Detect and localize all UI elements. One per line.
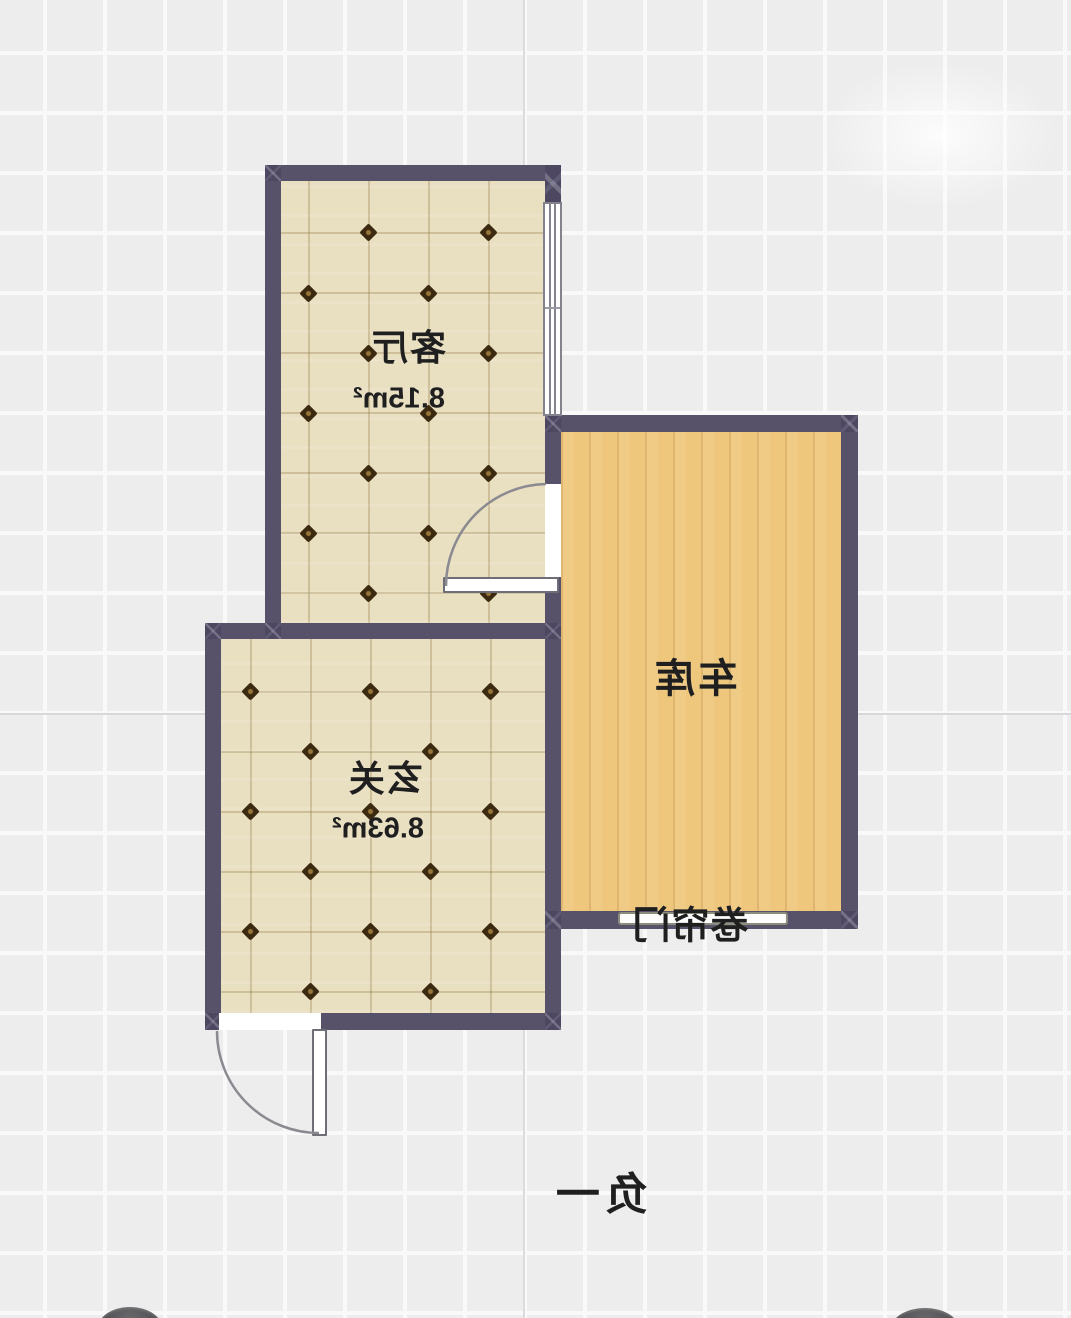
floor-diamond-motif: [481, 682, 499, 700]
door-leaf-entry[interactable]: [312, 1029, 327, 1136]
wall-corner: [265, 623, 281, 639]
wall-corner: [265, 165, 281, 181]
floor-diamond-motif: [419, 524, 437, 542]
room-label-living: 客厅: [370, 319, 446, 371]
wall-corner: [545, 623, 561, 639]
window[interactable]: [543, 202, 562, 416]
floor-diamond-motif: [299, 284, 317, 302]
room-area-entryway: 8.63m²: [332, 813, 424, 846]
floor-diamond-motif: [421, 982, 439, 1000]
floor-diamond-motif: [361, 922, 379, 940]
floor-diamond-motif: [241, 922, 259, 940]
map-pin[interactable]: [98, 1307, 162, 1318]
floor-diamond-motif: [299, 404, 317, 422]
wall-corner: [545, 1013, 561, 1030]
wall-corner: [841, 415, 858, 432]
floor-plan-canvas: 客厅 8.15m² 玄关 8.63m² 车库 卷帘门 负一: [0, 0, 1071, 1318]
background-highlight: [820, 60, 1060, 210]
wall-corner: [841, 911, 858, 929]
floor-diamond-motif: [359, 464, 377, 482]
floor-diamond-motif: [241, 682, 259, 700]
map-pin[interactable]: [891, 1308, 959, 1318]
floor-diamond-motif: [479, 344, 497, 362]
floor-diamond-motif: [299, 524, 317, 542]
floor-diamond-motif: [241, 802, 259, 820]
window-mullion: [545, 307, 560, 309]
room-label-entryway: 玄关: [347, 750, 423, 802]
floor-diamond-motif: [359, 223, 377, 241]
wall-corner: [205, 623, 221, 639]
floor-diamond-motif: [481, 802, 499, 820]
floor-diamond-motif: [421, 862, 439, 880]
door-opening-entry: [219, 1013, 321, 1030]
wall-shared-right: [545, 576, 561, 1030]
room-area-living: 8.15m²: [353, 383, 445, 416]
floor-diamond-motif: [481, 922, 499, 940]
door-leaf-living[interactable]: [443, 577, 559, 593]
window-mullion: [549, 204, 551, 414]
floor-diamond-motif: [301, 742, 319, 760]
wall-garage-top: [561, 415, 858, 432]
wall-entry-left: [205, 623, 221, 1030]
floor-diamond-motif: [479, 223, 497, 241]
wall-living-top: [265, 165, 561, 181]
floor-diamond-motif: [301, 862, 319, 880]
wall-entry-top: [205, 623, 561, 639]
door-opening-living: [545, 484, 561, 577]
room-label-garage: 车库: [652, 646, 738, 704]
wall-corner: [545, 911, 561, 929]
window-mullion: [554, 204, 556, 414]
rolling-door-label: 卷帘门: [631, 895, 748, 950]
wall-living-left: [265, 165, 281, 639]
floor-diamond-motif: [479, 464, 497, 482]
wall-garage-right: [841, 415, 858, 929]
wall-corner: [545, 165, 561, 202]
floor-diamond-motif: [361, 682, 379, 700]
floor-diamond-motif: [419, 284, 437, 302]
floor-diamond-motif: [421, 742, 439, 760]
floor-diamond-motif: [359, 584, 377, 602]
floor-diamond-motif: [301, 982, 319, 1000]
floor-level-label: 负一: [552, 1158, 648, 1222]
wall-corner: [545, 415, 561, 432]
